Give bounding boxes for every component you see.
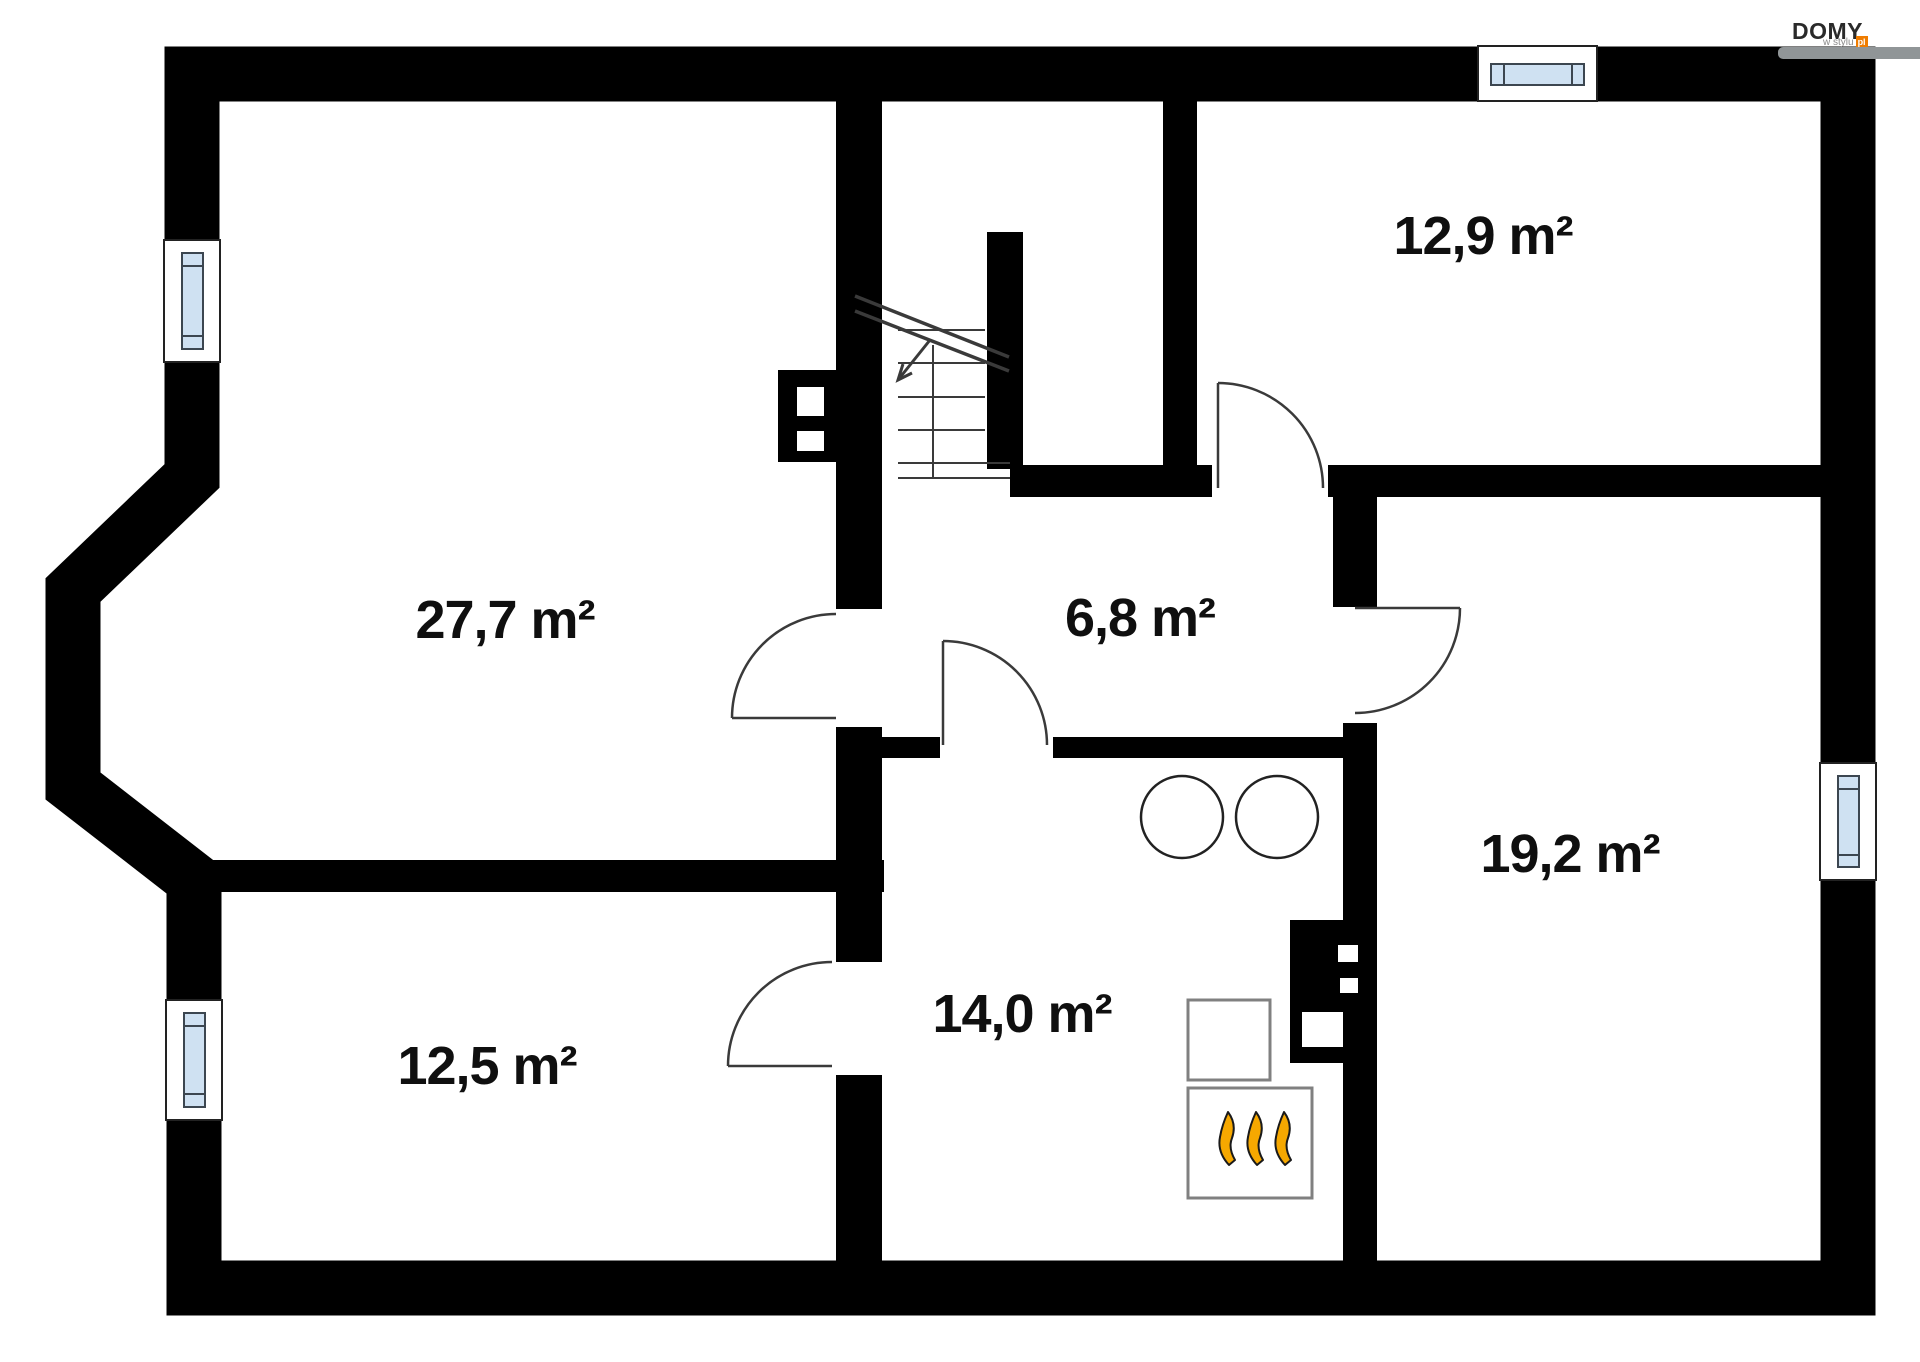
floor-plan-drawing [0,0,1920,1362]
door-bottom-left-room [728,962,832,1066]
hob-circles [1141,776,1318,858]
door-right-room [1355,608,1460,713]
room-label-bottom-left: 12,5 m² [397,1035,576,1097]
floor-plan: 27,7 m² 12,9 m² 6,8 m² 19,2 m² 14,0 m² 1… [0,0,1920,1362]
fireplace [1188,1088,1312,1198]
door-top-right-room [1218,383,1323,488]
room-label-hall: 6,8 m² [1065,587,1215,649]
chimney-stair [778,370,840,462]
room-label-top-right: 12,9 m² [1393,205,1572,267]
room-label-right: 19,2 m² [1480,823,1659,885]
window-right [1820,763,1876,880]
window-left-lower [166,1000,222,1120]
room-label-large-left: 27,7 m² [415,589,594,651]
window-left-upper [164,240,220,362]
flame-icon [1219,1112,1291,1165]
kitchen-cabinet [1188,1000,1270,1080]
room-label-kitchen: 14,0 m² [932,983,1111,1045]
brand-logo: DOMY w stylupl [1720,0,1920,64]
windows [164,46,1876,1120]
door-left-room [732,614,836,718]
chimney-kitchen [1290,920,1377,1063]
exterior-walls [73,74,1848,1288]
logo-underline-bar [1778,47,1920,59]
window-top [1478,46,1597,101]
door-kitchen [943,641,1047,745]
